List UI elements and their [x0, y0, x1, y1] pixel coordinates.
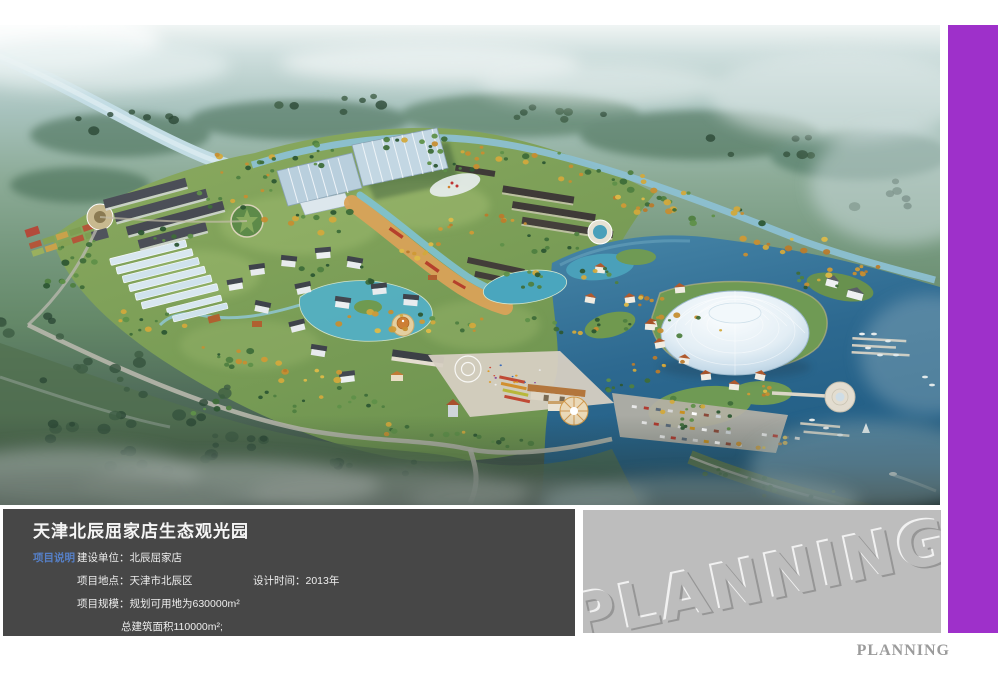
tree — [236, 359, 243, 364]
tree — [767, 386, 772, 390]
tree — [414, 256, 420, 261]
tree — [558, 176, 564, 181]
tree — [823, 249, 830, 255]
tree — [504, 157, 508, 160]
tree — [673, 312, 680, 318]
tree — [800, 276, 804, 279]
tree — [643, 208, 648, 212]
tree — [433, 164, 438, 168]
tree — [541, 249, 547, 253]
tree — [165, 313, 169, 316]
tree — [218, 388, 232, 399]
tree — [545, 246, 550, 250]
tree — [855, 267, 860, 271]
tree — [138, 329, 141, 332]
tree — [301, 215, 306, 219]
tree — [559, 331, 563, 335]
aerial-render-svg — [0, 25, 940, 505]
tree — [341, 96, 347, 101]
tree — [574, 232, 579, 236]
tree — [554, 327, 560, 332]
tree — [645, 378, 651, 383]
tree — [624, 303, 629, 307]
tree — [765, 392, 770, 396]
tree — [638, 304, 641, 307]
tree — [527, 270, 531, 274]
tree — [525, 318, 530, 322]
tree — [448, 218, 453, 222]
tree — [665, 208, 672, 214]
tree — [685, 408, 688, 410]
tree — [296, 214, 299, 217]
tree — [660, 410, 665, 414]
tree — [429, 316, 435, 321]
tree — [236, 349, 241, 353]
tree — [835, 285, 838, 288]
tree — [453, 163, 456, 166]
tree — [139, 318, 143, 321]
tree — [191, 411, 197, 416]
tree — [512, 376, 514, 377]
tree — [668, 319, 671, 321]
tree — [532, 316, 537, 320]
tree — [632, 363, 635, 366]
tree — [569, 165, 574, 169]
tree — [364, 394, 368, 397]
tree — [719, 329, 722, 331]
tree — [821, 237, 828, 242]
tree — [612, 182, 617, 186]
tree — [580, 269, 586, 274]
tree — [596, 169, 601, 173]
tree — [459, 167, 462, 170]
tree — [368, 279, 374, 284]
tree — [443, 169, 447, 172]
tree — [340, 109, 348, 115]
tree — [337, 230, 341, 233]
tree — [383, 145, 390, 150]
tree — [320, 375, 324, 378]
tree — [481, 152, 485, 155]
tree — [656, 370, 661, 374]
tree — [495, 384, 497, 386]
tree — [226, 357, 234, 363]
tree — [438, 227, 443, 231]
tree — [302, 400, 305, 403]
tree — [229, 364, 235, 369]
tree — [315, 369, 320, 373]
tree — [480, 146, 484, 149]
tree — [634, 209, 641, 215]
tree — [143, 114, 151, 120]
tree — [162, 239, 165, 242]
tree — [636, 206, 640, 209]
tree — [567, 246, 571, 249]
tree — [528, 282, 534, 287]
tree — [73, 273, 78, 277]
tree — [278, 378, 284, 383]
tree — [197, 191, 203, 196]
tree — [629, 384, 634, 388]
tree — [429, 145, 433, 148]
tree — [657, 328, 663, 333]
tree — [171, 234, 177, 238]
tree — [260, 161, 265, 165]
tree — [269, 189, 272, 192]
tree — [860, 272, 866, 277]
tree — [495, 156, 502, 162]
tree — [43, 283, 50, 289]
tree — [418, 313, 423, 317]
tree — [853, 272, 857, 275]
tree — [240, 205, 246, 210]
tree — [860, 265, 864, 268]
tree — [182, 324, 188, 328]
tree — [712, 215, 716, 218]
project-info-panel: 天津北辰屈家店生态观光园 项目说明 建设单位：北辰屈家店 项目地点：天津市北辰区… — [3, 509, 575, 636]
tree — [214, 406, 221, 412]
tree — [797, 150, 808, 159]
tree — [660, 297, 665, 301]
tree — [121, 309, 127, 314]
tree — [117, 377, 124, 382]
tree — [560, 116, 568, 123]
tree — [329, 217, 337, 223]
tree — [676, 333, 682, 338]
tree — [70, 283, 76, 288]
tree — [375, 328, 381, 333]
tree — [473, 164, 479, 169]
tree — [76, 364, 88, 374]
tree — [876, 265, 881, 269]
tree — [579, 173, 583, 176]
tree — [133, 358, 146, 368]
tree — [460, 328, 465, 332]
tree — [628, 170, 634, 175]
tree — [423, 252, 427, 255]
tree — [633, 369, 637, 372]
tree — [283, 369, 287, 372]
tree — [220, 171, 223, 173]
tree — [555, 108, 564, 115]
tree — [359, 98, 366, 103]
tree — [333, 377, 341, 383]
tree — [248, 363, 254, 367]
tree — [606, 273, 611, 277]
tree — [80, 258, 87, 263]
tree — [224, 363, 229, 367]
tree — [400, 314, 403, 317]
tree — [388, 326, 396, 332]
tree — [691, 404, 696, 408]
tree — [168, 116, 179, 124]
tree — [495, 377, 497, 379]
tree — [153, 237, 156, 240]
tree — [563, 108, 573, 116]
tree — [534, 382, 536, 383]
tree — [270, 169, 274, 172]
tree — [627, 187, 635, 193]
design-time-line: 设计时间：2013年 — [253, 573, 339, 588]
tree — [514, 115, 521, 120]
tree — [485, 214, 489, 217]
tree — [754, 240, 761, 245]
round-pavilion — [392, 314, 414, 336]
tree — [628, 323, 631, 325]
tree — [326, 264, 330, 267]
tree — [578, 331, 583, 335]
tree — [783, 151, 790, 157]
tree — [521, 286, 525, 289]
tree — [524, 222, 527, 225]
tree — [623, 319, 628, 323]
tree — [395, 139, 399, 142]
tree — [469, 323, 476, 329]
tree — [246, 348, 254, 354]
tree — [88, 126, 99, 135]
tree — [615, 195, 621, 200]
tree — [93, 240, 96, 242]
watermark-face: PLANNING — [583, 510, 941, 633]
tree — [662, 364, 665, 367]
tree — [43, 313, 52, 320]
tree — [376, 100, 388, 109]
tree — [293, 405, 297, 408]
tree — [516, 381, 518, 383]
tree — [412, 252, 416, 256]
tree — [672, 208, 677, 212]
tree — [664, 199, 672, 205]
tree — [437, 149, 443, 154]
tree — [317, 150, 320, 152]
tree — [427, 161, 431, 165]
tree — [245, 163, 249, 166]
tree — [762, 385, 765, 387]
tree — [620, 179, 628, 185]
accent-stripe — [948, 25, 998, 633]
tree — [382, 405, 385, 408]
tree — [595, 318, 600, 322]
watermark-wrapper: PLANNING PLANNING PLANNING — [583, 510, 941, 633]
tree — [489, 381, 491, 383]
tree — [532, 153, 538, 158]
tree — [653, 356, 658, 360]
tree — [129, 333, 132, 336]
tree — [493, 375, 495, 376]
tree — [317, 267, 324, 273]
tree — [640, 174, 645, 178]
tree — [351, 395, 356, 399]
tree — [638, 296, 643, 300]
tree — [217, 353, 220, 355]
tree — [208, 205, 213, 209]
tree — [3, 328, 15, 338]
tree — [383, 137, 390, 142]
project-title: 天津北辰屈家店生态观光园 — [33, 517, 249, 542]
tree — [758, 220, 766, 226]
tree — [314, 163, 317, 166]
tree — [199, 399, 208, 406]
tree — [265, 391, 269, 394]
tree — [523, 160, 529, 165]
tree — [650, 188, 657, 194]
tree — [318, 163, 324, 168]
watermark-panel: PLANNING PLANNING PLANNING — [583, 510, 941, 633]
tree — [576, 247, 580, 250]
tree — [337, 405, 342, 409]
tree — [292, 156, 298, 161]
tree — [500, 243, 505, 247]
tree — [649, 203, 654, 207]
tree — [59, 279, 65, 284]
tree — [80, 285, 85, 289]
tree — [75, 116, 81, 121]
tree — [780, 250, 786, 254]
tree — [129, 109, 136, 114]
tree — [529, 104, 537, 110]
tree — [402, 327, 408, 331]
tree — [461, 150, 465, 153]
tree — [124, 387, 130, 392]
tree — [790, 238, 794, 241]
tree — [489, 367, 491, 369]
tree — [273, 395, 276, 398]
tree — [740, 212, 744, 215]
tree — [337, 386, 342, 390]
tree — [330, 210, 336, 215]
tree — [160, 227, 166, 232]
tree — [134, 351, 143, 358]
tree — [465, 151, 471, 156]
tree — [658, 315, 664, 320]
tree — [401, 137, 408, 142]
tree — [399, 249, 404, 253]
tree — [40, 377, 48, 383]
tree — [591, 329, 596, 333]
tree — [310, 273, 315, 277]
tree — [366, 404, 371, 408]
tree — [263, 175, 266, 178]
tree — [700, 404, 705, 408]
tree — [161, 330, 167, 335]
tree — [600, 112, 607, 117]
tree — [731, 210, 738, 216]
tree — [336, 370, 342, 375]
tree — [430, 320, 435, 324]
tree — [317, 230, 324, 236]
tree — [539, 369, 541, 371]
tree — [796, 272, 800, 275]
tree — [606, 378, 611, 382]
tree — [800, 248, 807, 254]
tree — [261, 189, 265, 192]
tree — [428, 149, 434, 154]
tree — [569, 180, 572, 183]
tree — [61, 246, 64, 249]
tree — [728, 401, 734, 406]
tree — [61, 260, 69, 266]
tree — [650, 299, 654, 302]
tree — [552, 321, 557, 325]
tree — [767, 243, 771, 246]
tree — [537, 285, 542, 289]
tree — [728, 152, 735, 157]
tree — [218, 197, 222, 200]
tree — [743, 253, 748, 257]
tree — [474, 157, 479, 161]
tree — [290, 102, 299, 110]
tree — [641, 180, 647, 185]
builder-line: 建设单位：北辰屈家店 — [77, 550, 182, 565]
tree — [261, 357, 268, 362]
tree — [527, 234, 531, 237]
section-label: 项目说明 — [33, 550, 75, 565]
location-line: 项目地点：天津市北辰区 — [77, 573, 193, 588]
tree — [621, 203, 627, 208]
tree — [346, 209, 354, 215]
tree — [335, 321, 342, 327]
tree — [85, 253, 91, 258]
tree — [500, 364, 502, 366]
tree — [145, 327, 152, 332]
tree — [243, 361, 248, 365]
tree — [597, 323, 601, 326]
tree — [206, 198, 210, 201]
tree — [511, 219, 515, 222]
aerial-render — [0, 25, 940, 505]
tree — [428, 242, 433, 246]
tree — [372, 399, 378, 404]
tree — [797, 279, 801, 282]
tree — [670, 400, 675, 404]
tree — [406, 251, 410, 254]
tree — [644, 296, 650, 300]
tree — [499, 214, 505, 219]
tree — [313, 215, 319, 220]
tree — [230, 199, 235, 203]
tree — [807, 152, 815, 159]
tree — [319, 395, 324, 399]
tree — [310, 155, 314, 158]
tree — [557, 152, 561, 155]
tree — [138, 391, 147, 398]
tree — [370, 94, 377, 99]
tree — [212, 399, 219, 405]
tree — [542, 161, 546, 164]
tree — [236, 176, 241, 180]
scale-line: 项目规模：规划可用地为630000m² — [77, 596, 240, 611]
tree — [331, 149, 335, 152]
tree — [469, 231, 474, 235]
tree — [531, 249, 537, 254]
tree — [360, 266, 364, 269]
tree — [70, 256, 74, 259]
tree — [419, 139, 425, 144]
tree — [680, 360, 685, 364]
tree — [314, 143, 320, 148]
area-line: 总建筑面积110000m²; — [121, 619, 223, 634]
tree — [271, 179, 276, 183]
tree — [641, 198, 644, 201]
tree — [275, 360, 282, 365]
tree — [747, 393, 750, 396]
tree — [272, 157, 276, 161]
tree — [522, 153, 529, 159]
tree — [107, 112, 113, 117]
tree — [245, 166, 251, 171]
tree — [480, 318, 484, 321]
tree — [696, 316, 701, 320]
